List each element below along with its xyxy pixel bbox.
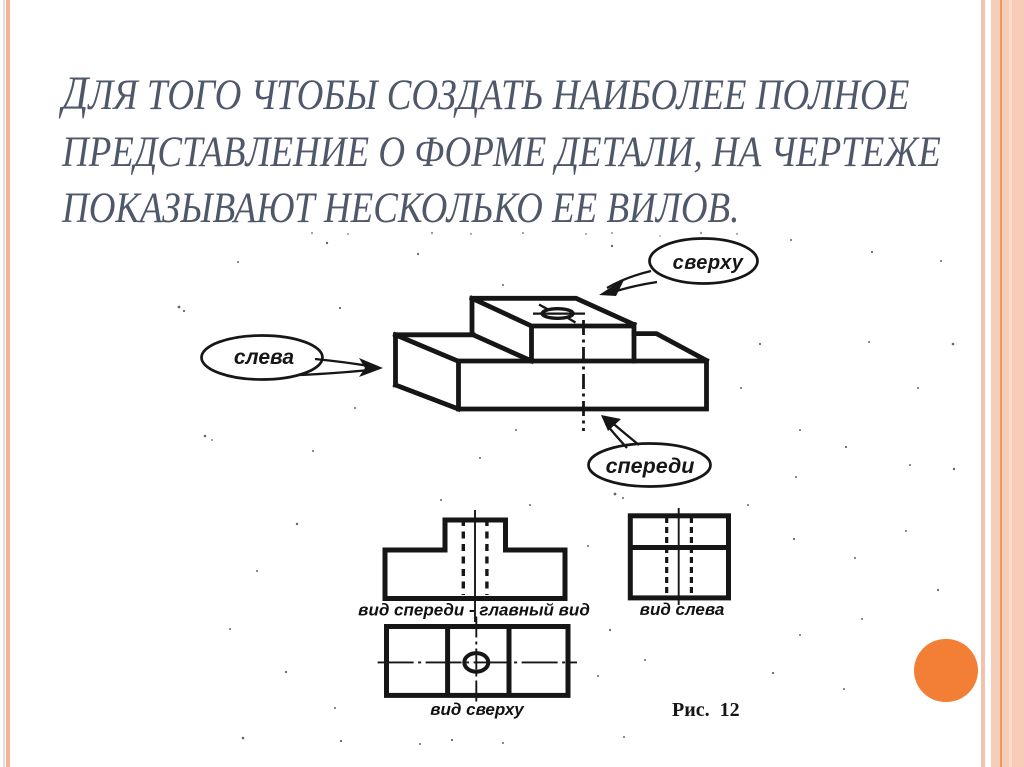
svg-text:спереди: спереди (606, 454, 695, 478)
svg-text:вид сверху: вид сверху (430, 700, 525, 719)
svg-text:вид спереди - главный вид: вид спереди - главный вид (358, 601, 590, 620)
svg-text:вид слева: вид слева (640, 600, 725, 619)
svg-text:Рис. 12: Рис. 12 (672, 699, 740, 721)
svg-text:сверху: сверху (673, 252, 744, 274)
svg-text:слева: слева (234, 346, 295, 369)
